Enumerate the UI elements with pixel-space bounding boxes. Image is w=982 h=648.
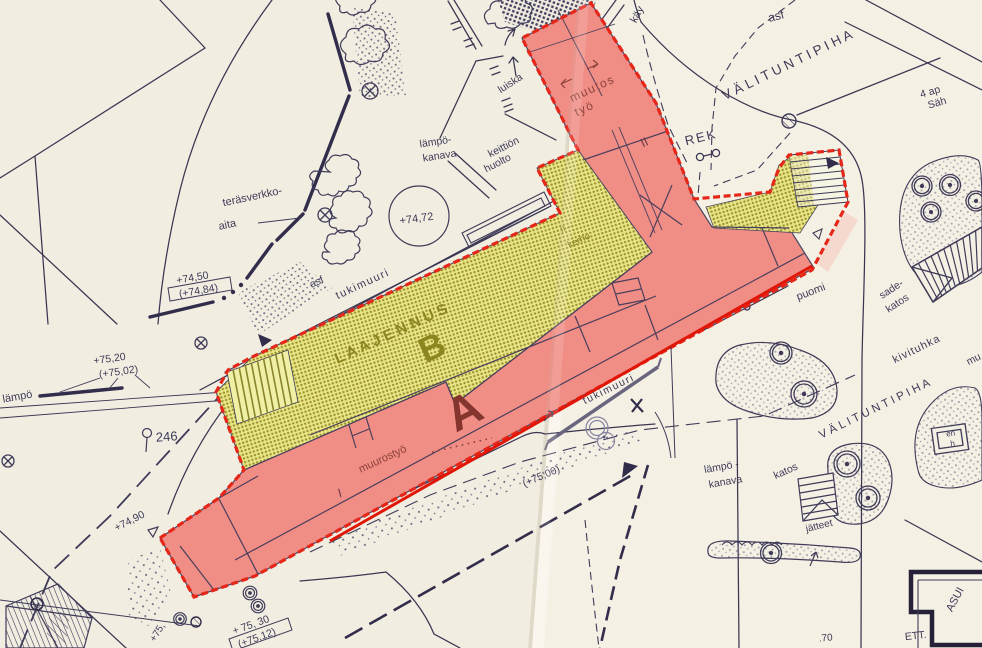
svg-text:.70: .70 (818, 632, 833, 644)
svg-text:246: 246 (155, 428, 178, 444)
svg-text:ETT.: ETT. (904, 629, 927, 643)
svg-text:en: en (946, 428, 956, 438)
